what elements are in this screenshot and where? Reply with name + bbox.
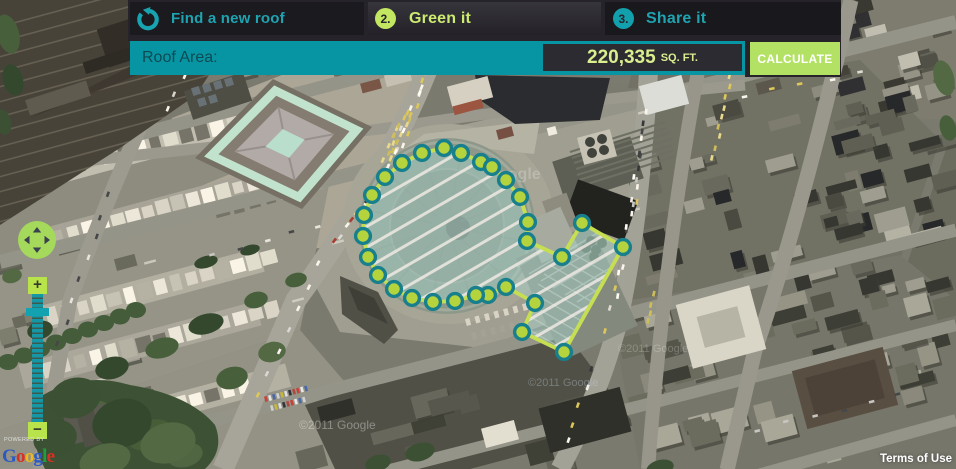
svg-text:©2011 Google: ©2011 Google xyxy=(299,418,376,432)
svg-text:©2011 Google: ©2011 Google xyxy=(618,343,688,355)
svg-text:©2011 Google: ©2011 Google xyxy=(528,377,598,389)
